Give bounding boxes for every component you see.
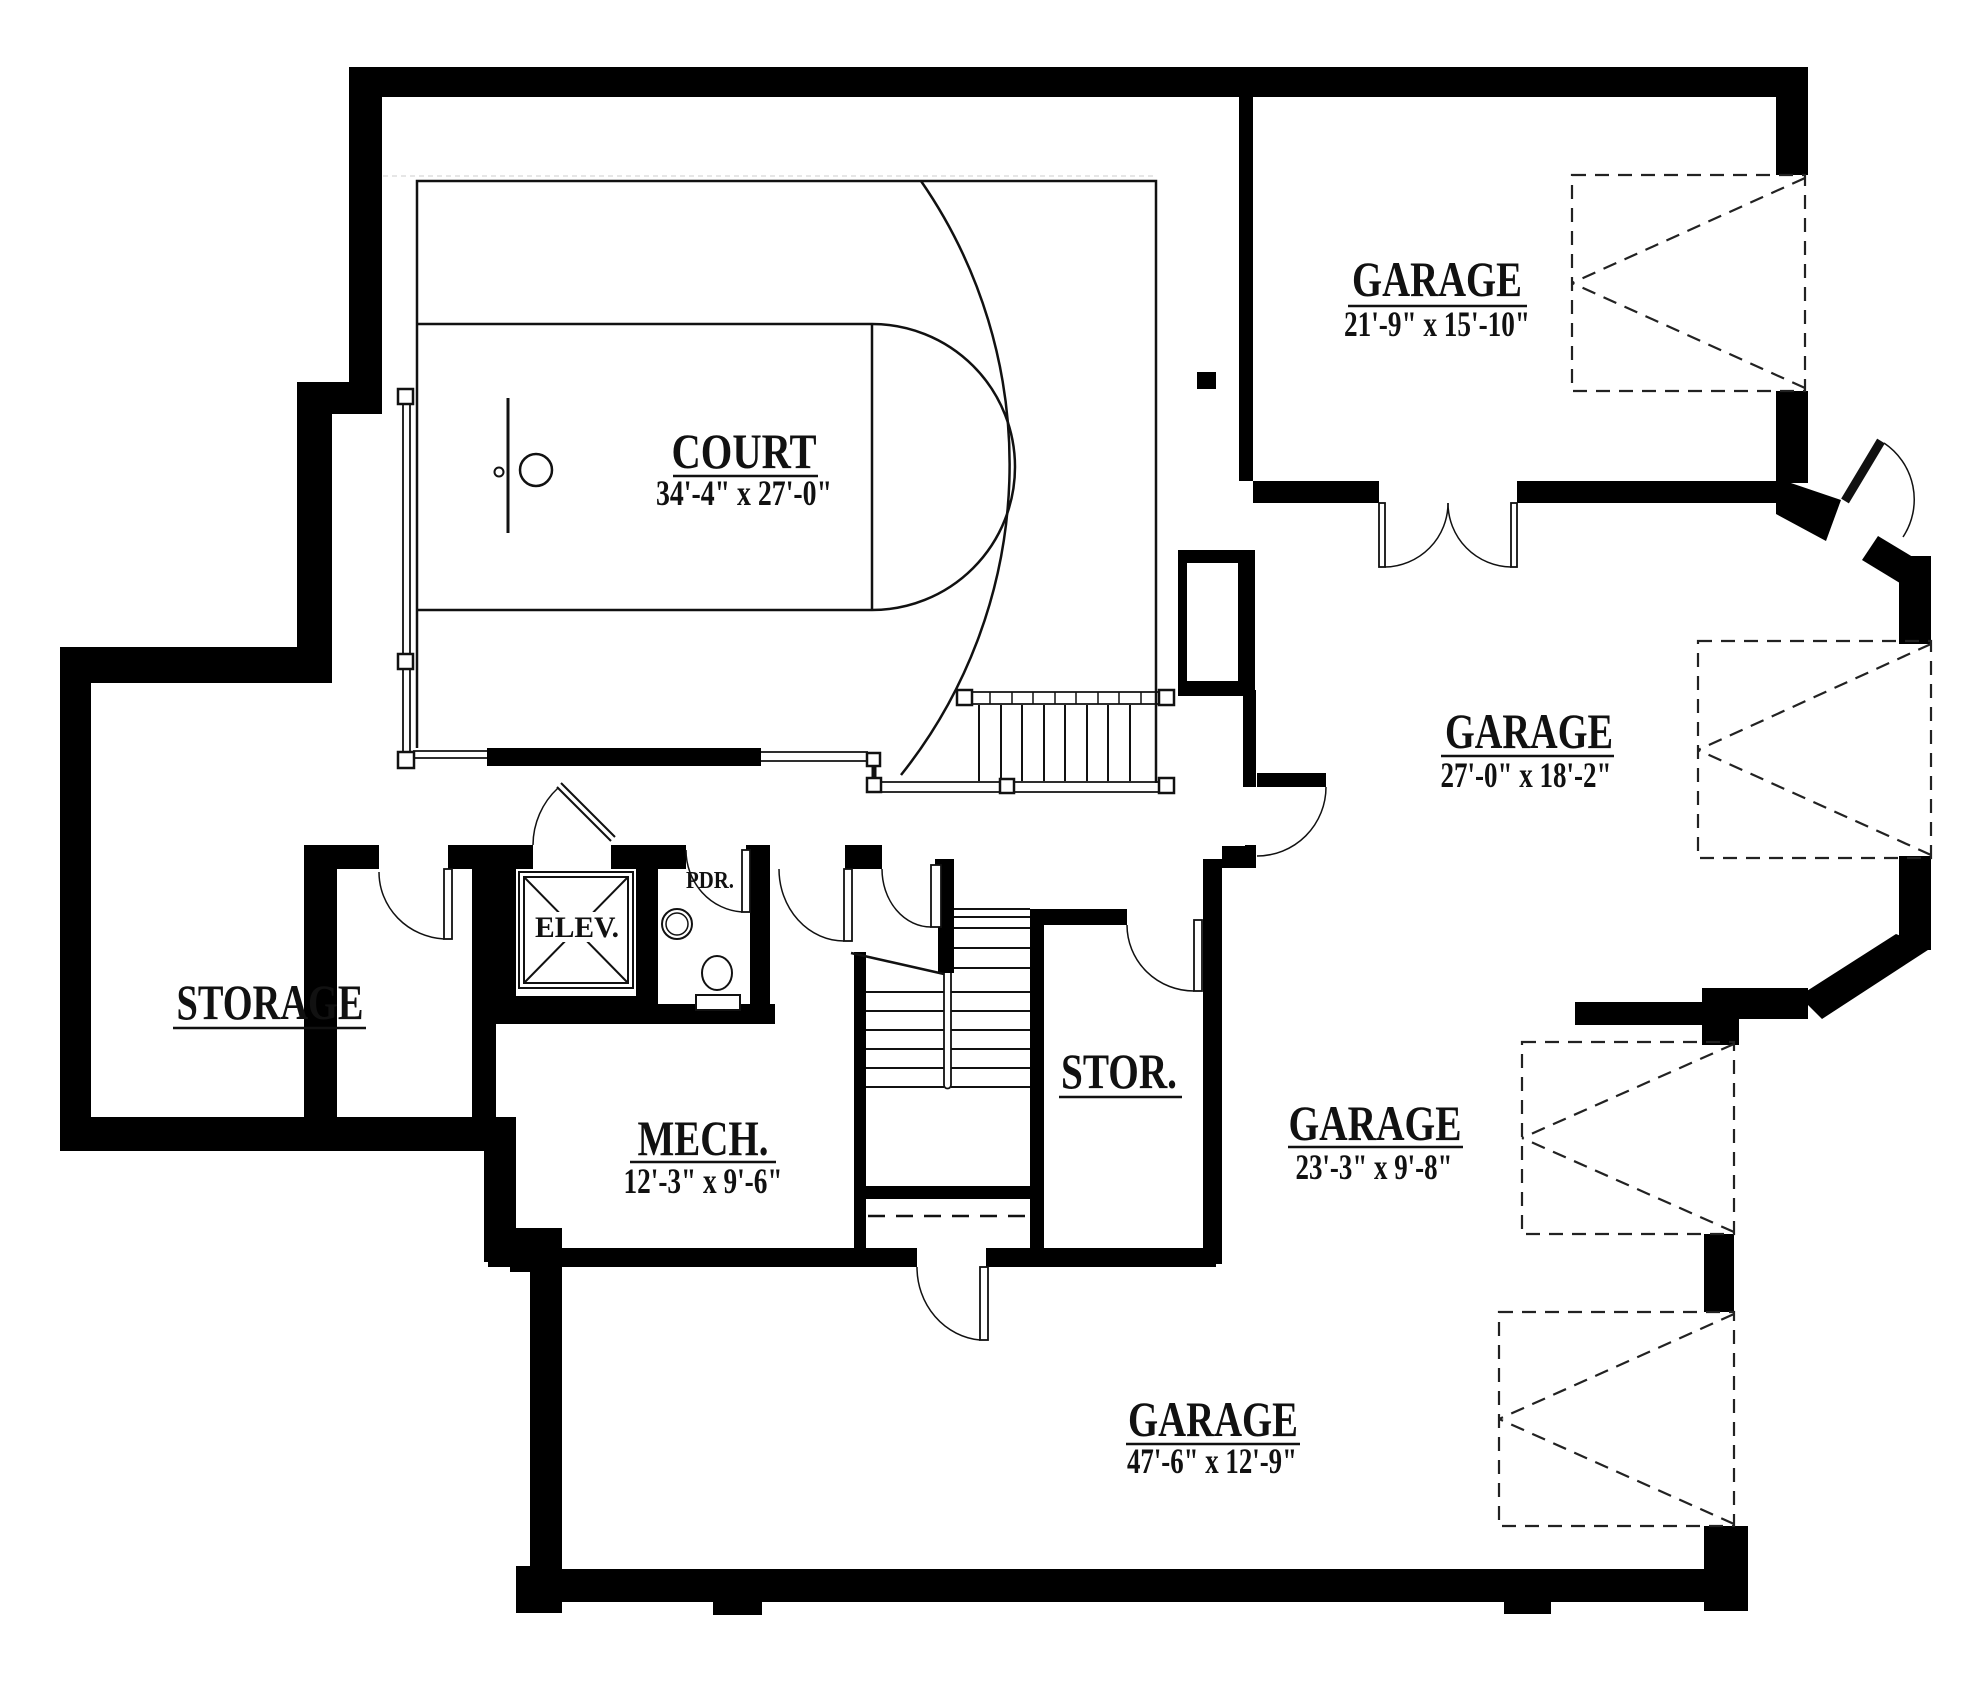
svg-text:GARAGE: GARAGE: [1289, 1095, 1462, 1151]
svg-text:47'-6" x 12'-9": 47'-6" x 12'-9": [1127, 1441, 1297, 1481]
svg-text:ELEV.: ELEV.: [535, 911, 619, 944]
svg-text:STOR.: STOR.: [1061, 1043, 1177, 1099]
svg-text:MECH.: MECH.: [638, 1110, 769, 1166]
svg-text:PDR.: PDR.: [686, 868, 734, 894]
svg-text:GARAGE: GARAGE: [1445, 703, 1613, 759]
svg-text:COURT: COURT: [672, 423, 817, 479]
svg-text:27'-0" x 18'-2": 27'-0" x 18'-2": [1441, 755, 1612, 795]
svg-text:GARAGE: GARAGE: [1128, 1391, 1298, 1447]
svg-text:34'-4" x 27'-0": 34'-4" x 27'-0": [656, 473, 832, 513]
svg-text:GARAGE: GARAGE: [1352, 251, 1522, 307]
svg-text:23'-3" x 9'-8": 23'-3" x 9'-8": [1296, 1147, 1453, 1187]
svg-text:STORAGE: STORAGE: [177, 974, 364, 1030]
svg-text:12'-3" x 9'-6": 12'-3" x 9'-6": [624, 1161, 783, 1201]
svg-text:21'-9" x 15'-10": 21'-9" x 15'-10": [1344, 304, 1530, 344]
